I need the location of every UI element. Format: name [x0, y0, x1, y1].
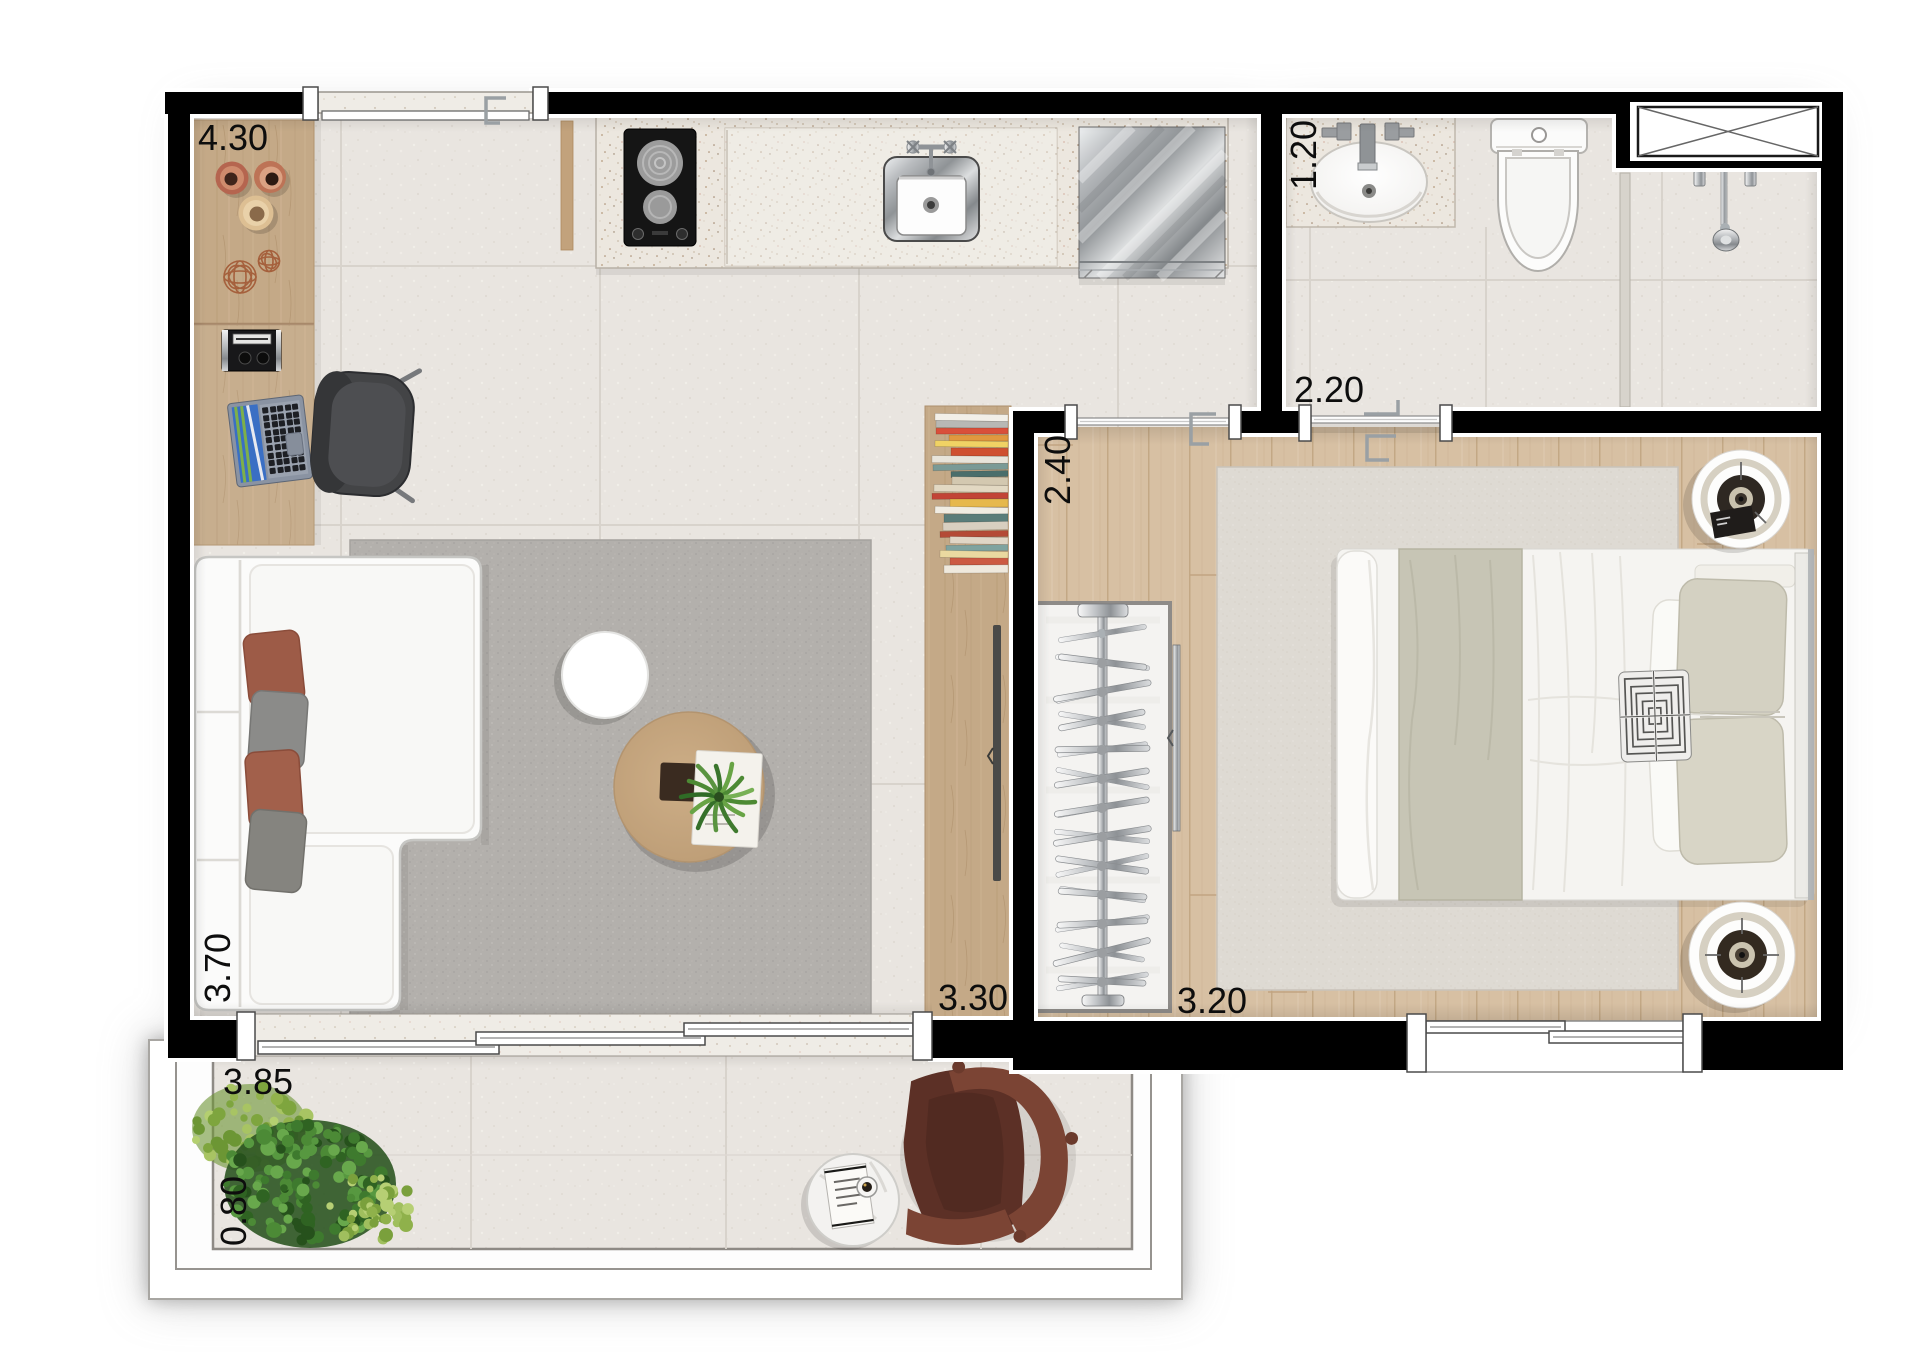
svg-text:4.30: 4.30: [198, 117, 268, 158]
svg-text:3.70: 3.70: [197, 933, 238, 1003]
svg-text:3.20: 3.20: [1177, 980, 1247, 1021]
svg-text:0.80: 0.80: [213, 1176, 254, 1246]
svg-text:2.20: 2.20: [1294, 369, 1364, 410]
svg-text:2.40: 2.40: [1037, 435, 1078, 505]
svg-text:1.20: 1.20: [1283, 120, 1324, 190]
svg-text:3.85: 3.85: [223, 1061, 293, 1102]
svg-text:3.30: 3.30: [938, 977, 1008, 1018]
